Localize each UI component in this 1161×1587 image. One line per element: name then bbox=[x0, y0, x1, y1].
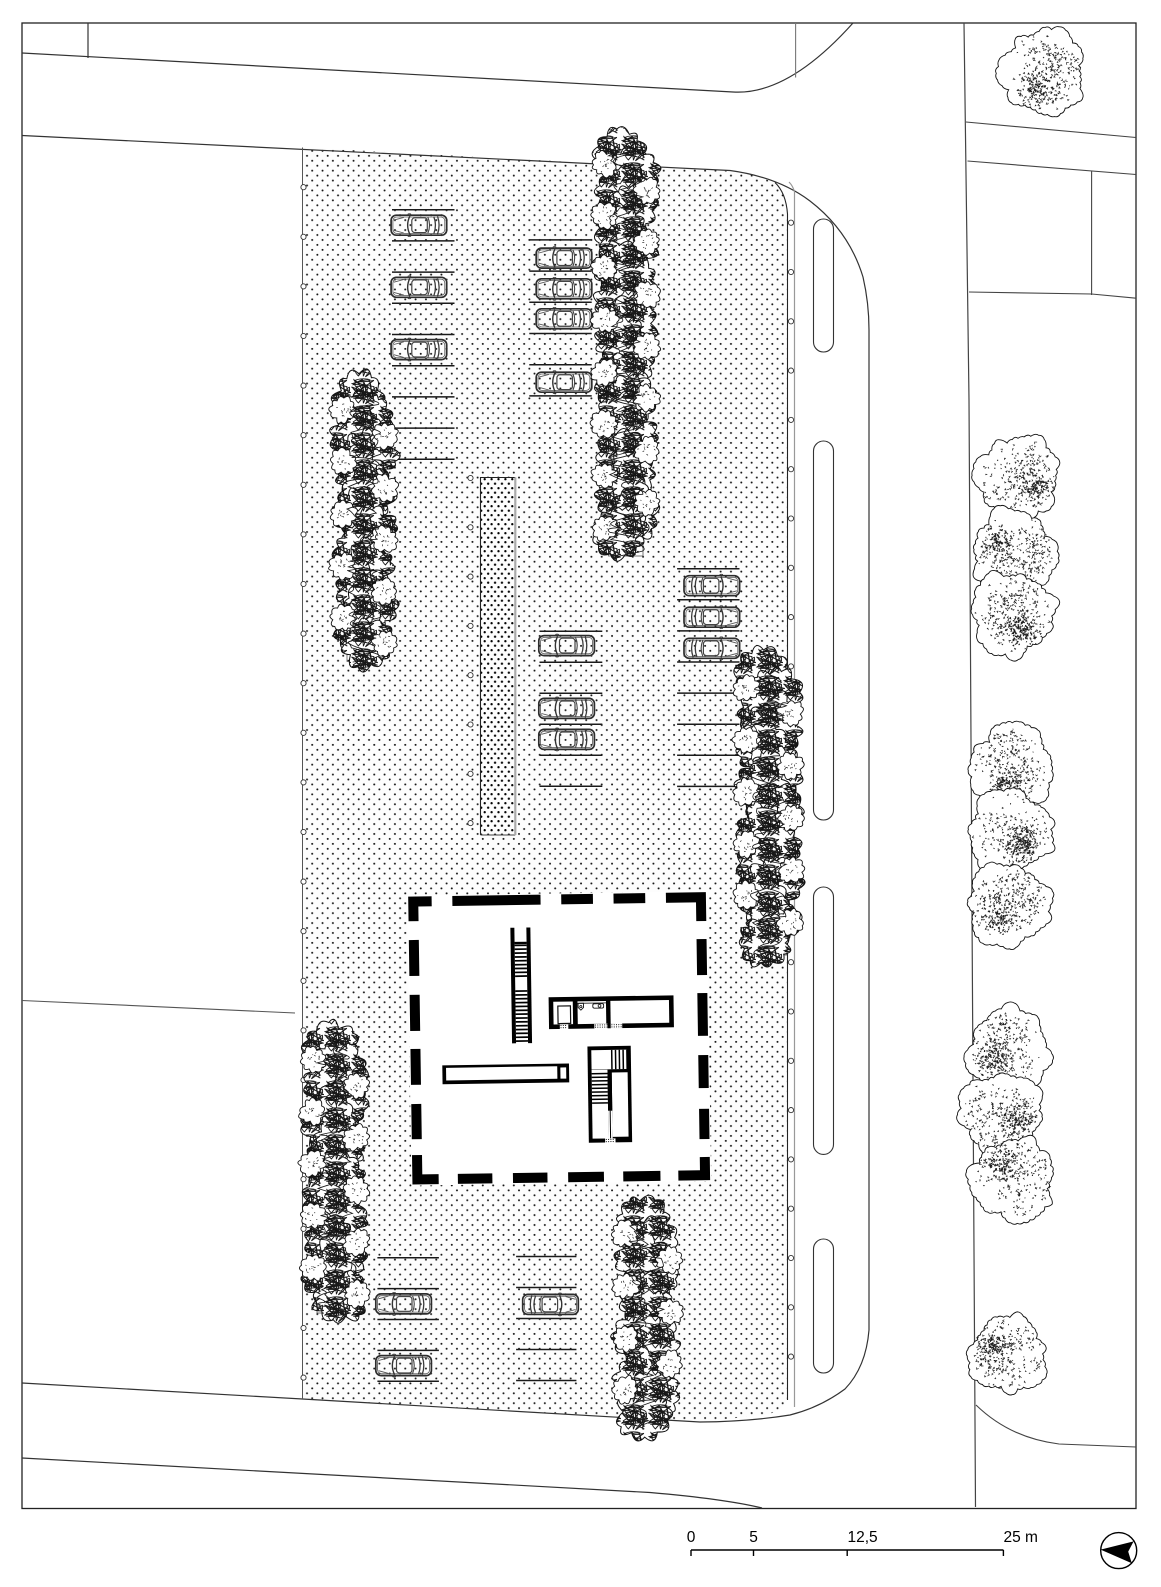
svg-text:5: 5 bbox=[749, 1529, 758, 1546]
svg-text:12,5: 12,5 bbox=[848, 1529, 878, 1546]
svg-text:0: 0 bbox=[687, 1529, 696, 1546]
svg-text:25 m: 25 m bbox=[1004, 1529, 1038, 1546]
